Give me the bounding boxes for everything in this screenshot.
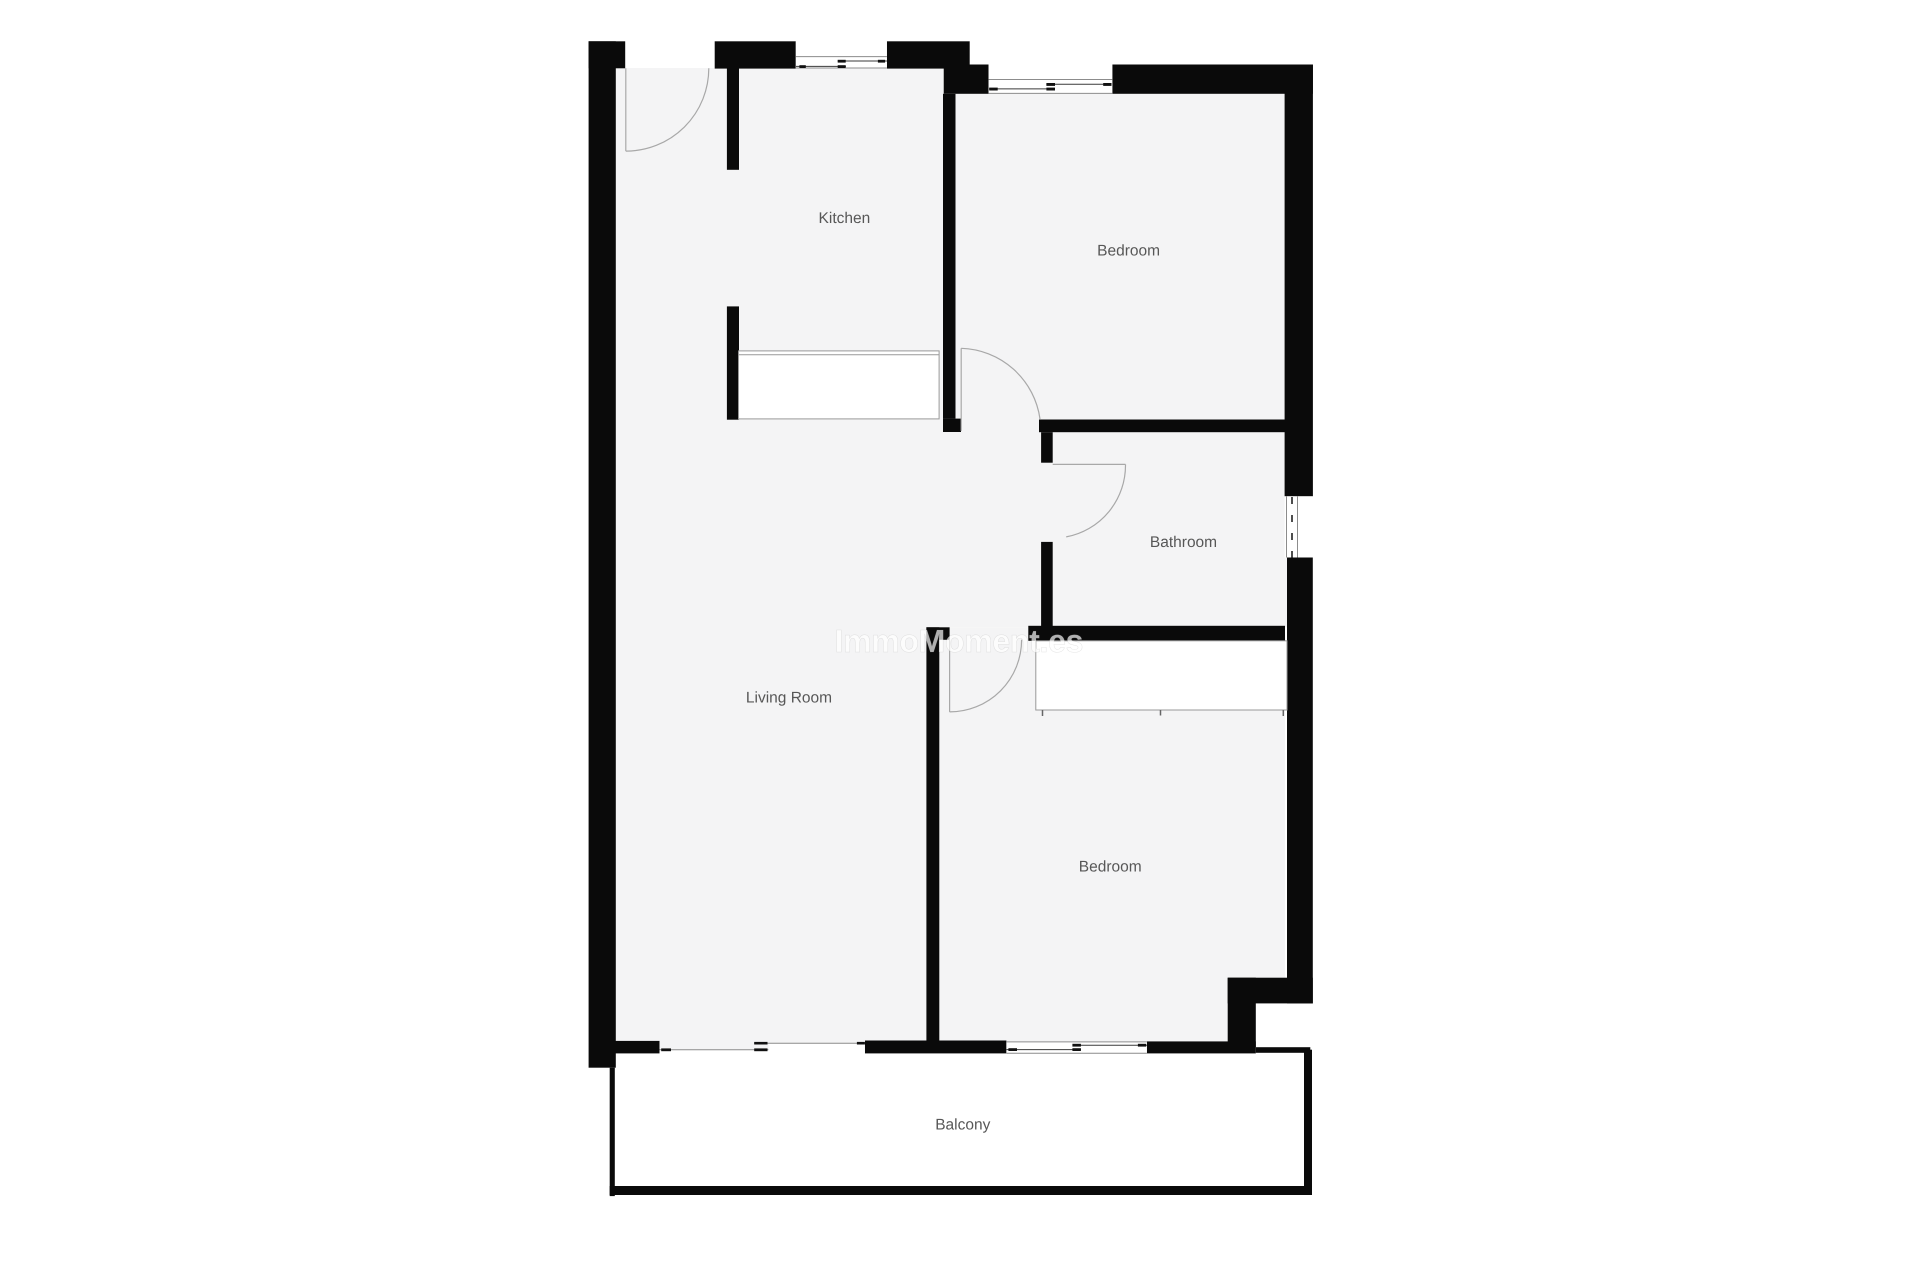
svg-text:ImmoMoment.es: ImmoMoment.es: [835, 623, 1084, 659]
svg-text:Kitchen: Kitchen: [819, 210, 871, 227]
svg-text:Bedroom: Bedroom: [1079, 859, 1142, 876]
svg-text:Bedroom: Bedroom: [1097, 243, 1160, 260]
svg-text:Balcony: Balcony: [935, 1117, 990, 1134]
svg-text:Living Room: Living Room: [746, 689, 832, 706]
svg-text:Bathroom: Bathroom: [1150, 534, 1217, 551]
